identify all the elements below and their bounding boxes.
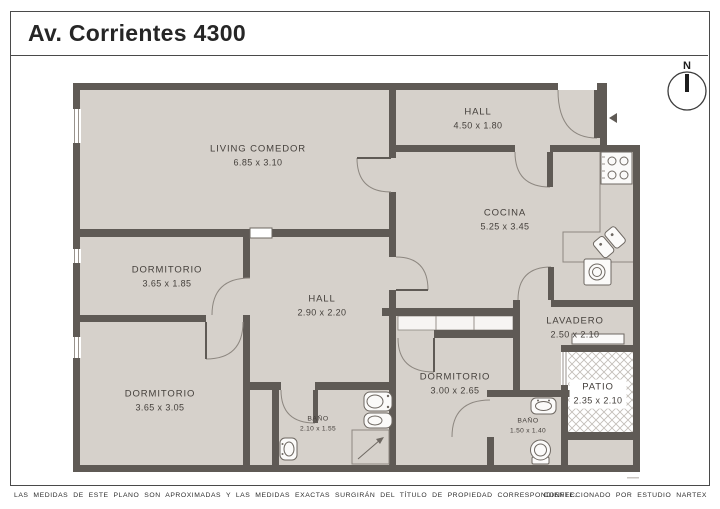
disclaimer-text: LAS MEDIDAS DE ESTE PLANO SON APROXIMADA… (14, 492, 577, 499)
title-band: Av. Corrientes 4300 (10, 11, 708, 56)
footer: LAS MEDIDAS DE ESTE PLANO SON APROXIMADA… (0, 488, 720, 509)
credit-text: CONFECCIONADO POR ESTUDIO NARTEX (543, 492, 707, 499)
page-title: Av. Corrientes 4300 (10, 20, 246, 47)
floorplan-page: N Av. Corrientes 4300 LIVING COMEDOR6.85… (0, 0, 720, 509)
page-border (10, 11, 710, 486)
